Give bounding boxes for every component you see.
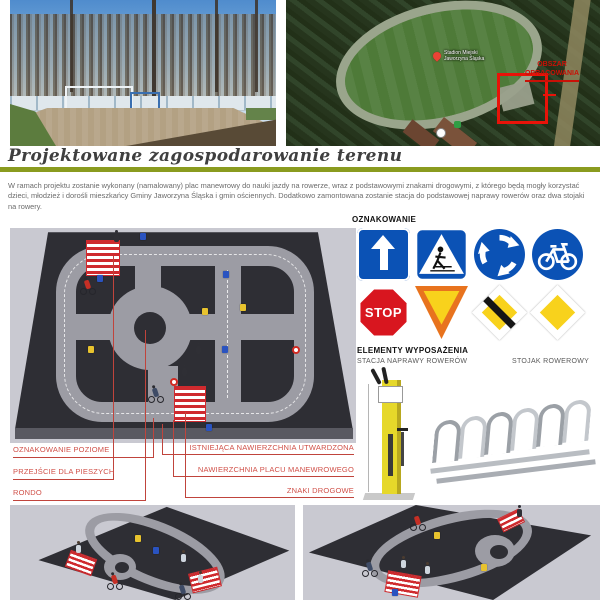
- bike-repair-station: [360, 370, 422, 500]
- repair-station-label: STACJA NAPRAWY ROWERÓW: [357, 358, 467, 365]
- rack-hoop: [562, 399, 592, 443]
- station-info-panel: [378, 386, 403, 403]
- tree-trunk: [215, 0, 218, 92]
- callout-underline: [13, 500, 145, 501]
- callout-line-existing-surface: [162, 424, 163, 455]
- callout-underline: [13, 479, 113, 480]
- callout-line-road-signs: [185, 412, 186, 498]
- diamond-rim: [472, 285, 527, 340]
- cyclist-figure: [175, 589, 191, 600]
- callout-roundabout: RONDO: [13, 488, 42, 497]
- roundabout-sign: [473, 228, 526, 281]
- mini-traffic-sign: [223, 271, 229, 278]
- project-description: W ramach projektu zostanie wykonany (nam…: [8, 181, 594, 212]
- station-tool-slot: [388, 434, 393, 476]
- mini-prohibition-sign: [292, 346, 300, 354]
- callout-underline: [162, 454, 354, 455]
- callout-horizontal-marking: OZNAKOWANIE POZIOME: [13, 445, 109, 454]
- pedestrian-figure: [181, 554, 186, 562]
- mini-traffic-sign: [392, 589, 398, 596]
- road-segment: [238, 314, 298, 340]
- mini-traffic-sign: [153, 547, 159, 554]
- mini-traffic-sign: [97, 275, 103, 282]
- pedestrian-figure: [425, 566, 430, 574]
- one-way-sign: [357, 228, 410, 281]
- diamond-face: [540, 295, 575, 330]
- diamond-rim: [530, 285, 585, 340]
- main-track-render: [10, 228, 356, 443]
- study-area-annotation: OBSZAR OPRACOWANIA: [508, 60, 596, 82]
- map-pin-label: Stadion Miejski Jaworzyna Śląska: [444, 50, 484, 63]
- pedestrian-figure: [517, 509, 522, 517]
- tree-trunk: [70, 0, 73, 92]
- light-pole: [152, 0, 156, 100]
- title-underline-bar: [0, 167, 600, 172]
- bike-path-sign: [531, 228, 584, 281]
- roundabout-island: [134, 312, 166, 344]
- annotation-line2: OPRACOWANIA: [525, 69, 579, 81]
- annotation-leader-line: [543, 94, 556, 96]
- cyclist-figure: [148, 392, 164, 403]
- callout-track-surface: NAWIERZCHNIA PLACU MANEWROWEGO: [198, 465, 354, 474]
- cyclist-figure: [107, 579, 123, 590]
- tree-trunk: [255, 0, 258, 92]
- callout-road-signs: ZNAKI DROGOWE: [287, 486, 354, 495]
- station-base: [363, 493, 415, 500]
- station-pump-hose: [401, 432, 404, 466]
- yield-sign: [415, 286, 468, 339]
- poster: Stadion Miejski Jaworzyna Śląska OBSZAR …: [0, 0, 600, 600]
- pedestrian-crossing-marking: [385, 571, 422, 599]
- pedestrian-crossing-marking: [86, 240, 120, 276]
- signage-heading: OZNAKOWANIE: [352, 215, 416, 224]
- perspective-render-2: [303, 505, 600, 600]
- callout-underline: [13, 457, 153, 458]
- mini-traffic-sign: [434, 532, 440, 539]
- road-center-dashes: [227, 270, 228, 398]
- cyclist-figure: [362, 566, 378, 577]
- map-poi-icon: [454, 121, 461, 128]
- annotation-line1: OBSZAR: [508, 60, 596, 69]
- pedestrian-crossing-icon: [415, 228, 468, 281]
- mini-traffic-sign: [88, 346, 94, 353]
- pedestrian-figure: [401, 560, 406, 568]
- map-pin-label-line2: Jaworzyna Śląska: [444, 56, 484, 62]
- equipment-heading: ELEMENTY WYPOSAŻENIA: [357, 346, 468, 355]
- mini-traffic-sign: [481, 564, 487, 571]
- mini-traffic-sign: [222, 346, 228, 353]
- track-platform-edge: [15, 428, 352, 439]
- pedestrian-figure: [182, 368, 187, 376]
- pedestrian-crossing-marking: [174, 386, 206, 422]
- pedestrian-figure: [198, 575, 203, 583]
- cyclist-figure: [80, 284, 96, 295]
- end-of-priority-road-sign: [473, 286, 526, 339]
- stop-sign-label: STOP: [357, 286, 410, 339]
- bicycle-icon: [531, 228, 584, 281]
- callout-line-track-surface: [173, 420, 174, 477]
- callout-line-horizontal-marking: [153, 418, 154, 458]
- goal-frame-blue: [130, 92, 160, 110]
- perspective-render-1: [10, 505, 295, 600]
- callout-pedestrian-crossing: PRZEJŚCIE DLA PIESZYCH: [13, 467, 115, 476]
- photo-trees: [10, 14, 276, 98]
- cyclist-figure: [410, 520, 426, 531]
- mini-traffic-sign: [140, 233, 146, 240]
- bike-rack: [428, 386, 600, 478]
- stop-sign: STOP: [357, 286, 410, 339]
- site-photo: [10, 0, 276, 146]
- callout-line-pedestrian-crossing: [113, 256, 114, 480]
- grass: [246, 108, 276, 120]
- pedestrian-figure: [196, 346, 201, 354]
- up-arrow-icon: [371, 235, 395, 249]
- callout-underline: [173, 476, 354, 477]
- callout-existing-surface: ISTNIEJĄCA NAWIERZCHNIA UTWARDZONA: [189, 443, 354, 452]
- aerial-photo: Stadion Miejski Jaworzyna Śląska OBSZAR …: [286, 0, 600, 146]
- mini-prohibition-sign: [170, 378, 178, 386]
- mini-traffic-sign: [202, 308, 208, 315]
- map-marker-icon: [436, 128, 446, 138]
- callout-line-roundabout: [145, 330, 146, 501]
- roundabout-island: [490, 545, 508, 559]
- mini-traffic-sign: [135, 535, 141, 542]
- pedestrian-figure: [114, 234, 119, 242]
- priority-road-sign: [531, 286, 584, 339]
- station-tool-handle: [370, 368, 382, 385]
- pedestrian-figure: [76, 545, 81, 553]
- pedestrian-crossing-sign: [415, 228, 468, 281]
- bike-rack-label: STOJAK ROWEROWY: [512, 358, 589, 365]
- road-segment: [72, 314, 112, 340]
- page-title: Projektowane zagospodarowanie terenu: [8, 146, 402, 166]
- roundabout-icon: [473, 228, 526, 281]
- callout-underline: [185, 497, 354, 498]
- station-pump-handle: [397, 428, 408, 431]
- mini-traffic-sign: [206, 424, 212, 431]
- mini-traffic-sign: [240, 304, 246, 311]
- dimension-line: [368, 384, 369, 492]
- up-arrow-shaft: [380, 248, 388, 270]
